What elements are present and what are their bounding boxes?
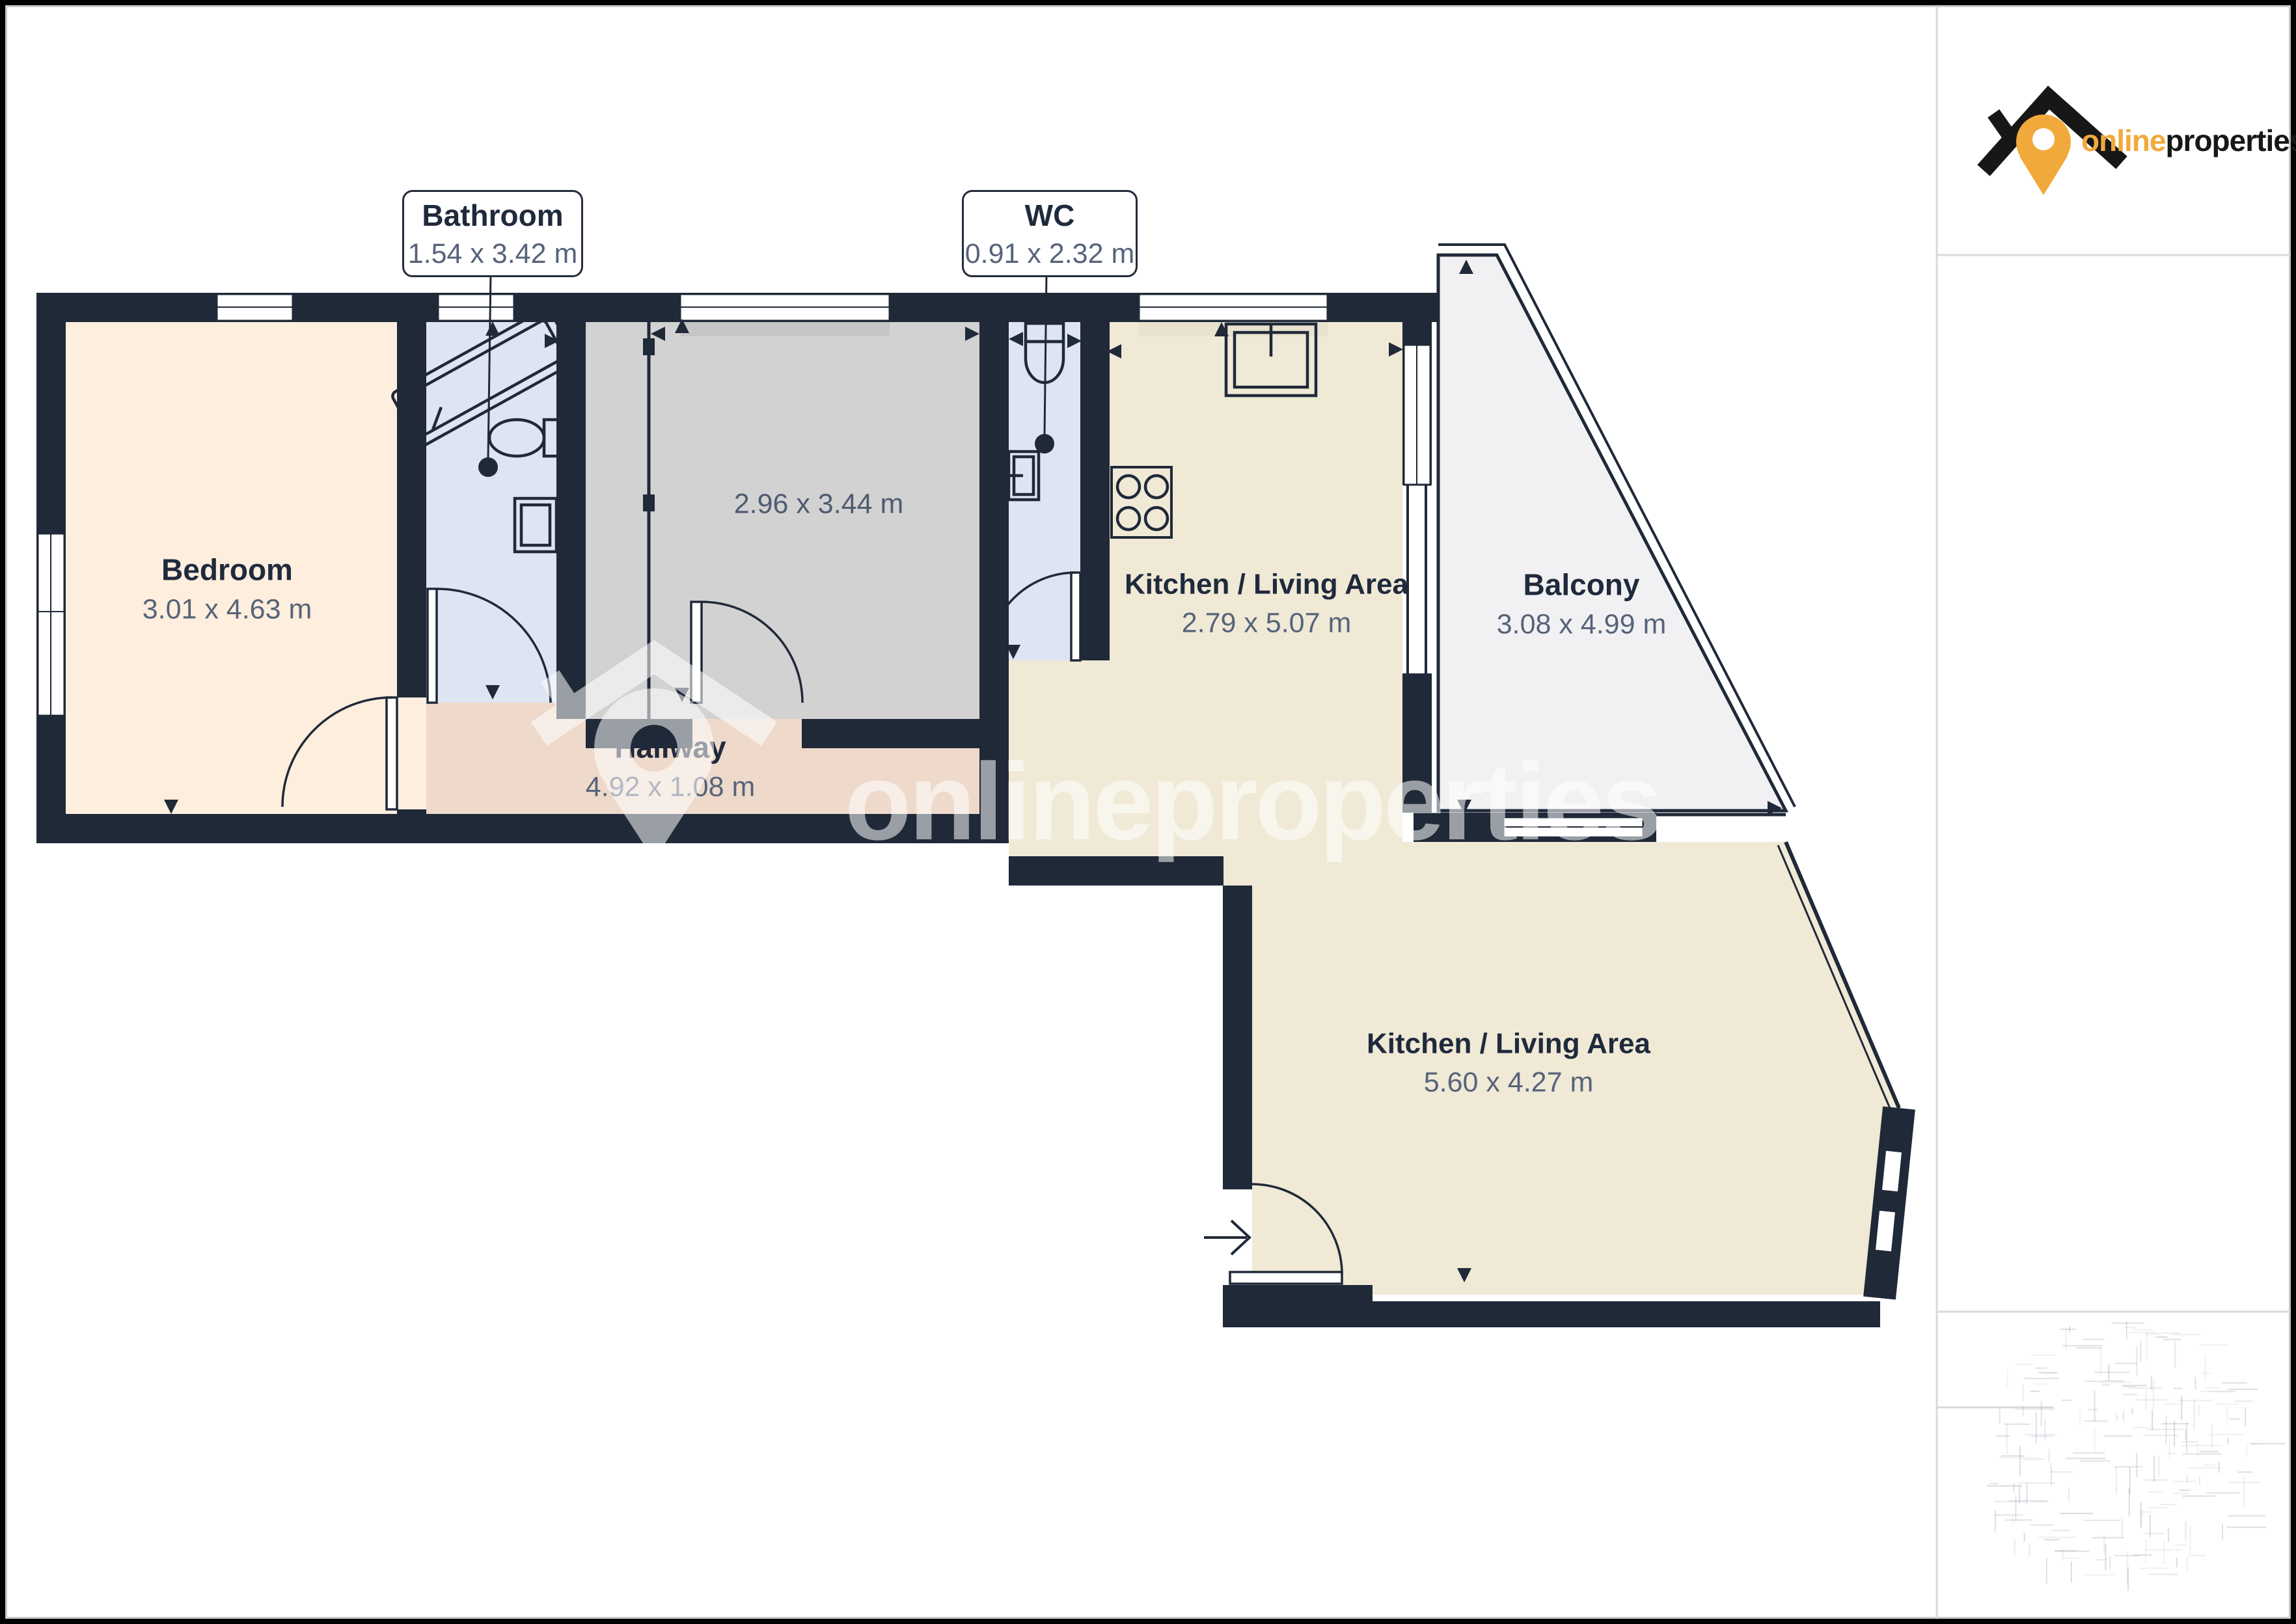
- bathroom-callout: Bathroom 1.54 x 3.42 m: [402, 190, 583, 277]
- kitchen-lower-label: Kitchen / Living Area 5.60 x 4.27 m: [1367, 1028, 1650, 1099]
- hallway-title: Hallway: [586, 730, 756, 765]
- gray-room-label: 2.96 x 3.44 m: [734, 482, 904, 521]
- kitchen-upper-label: Kitchen / Living Area 2.79 x 5.07 m: [1125, 569, 1408, 640]
- kitchen-lower-dims: 5.60 x 4.27 m: [1367, 1067, 1650, 1099]
- balcony-dims: 3.08 x 4.99 m: [1497, 609, 1667, 641]
- hallway-dims: 4.92 x 1.08 m: [586, 772, 756, 804]
- bedroom-dims: 3.01 x 4.63 m: [143, 594, 312, 626]
- kitchen-upper-dims: 2.79 x 5.07 m: [1125, 608, 1408, 640]
- balcony-title: Balcony: [1497, 567, 1667, 602]
- balcony-label: Balcony 3.08 x 4.99 m: [1497, 567, 1667, 641]
- bathroom-callout-title: Bathroom: [422, 198, 563, 233]
- wc-callout: WC 0.91 x 2.32 m: [962, 190, 1138, 277]
- bedroom-label: Bedroom 3.01 x 4.63 m: [143, 552, 312, 626]
- kitchen-lower-title: Kitchen / Living Area: [1367, 1028, 1650, 1061]
- kitchen-upper-title: Kitchen / Living Area: [1125, 569, 1408, 601]
- bathroom-callout-dims: 1.54 x 3.42 m: [408, 238, 578, 270]
- gray-room-dims: 2.96 x 3.44 m: [734, 489, 904, 521]
- floorplan-canvas: onlineproperties Bedroom 3.01 x 4.63 m 2…: [0, 0, 2296, 1624]
- hallway-label: Hallway 4.92 x 1.08 m: [586, 730, 756, 804]
- wc-callout-title: WC: [1025, 198, 1075, 233]
- wc-callout-dims: 0.91 x 2.32 m: [965, 238, 1135, 270]
- bedroom-title: Bedroom: [143, 552, 312, 588]
- room-labels: Bedroom 3.01 x 4.63 m 2.96 x 3.44 m Kitc…: [0, 0, 2296, 1624]
